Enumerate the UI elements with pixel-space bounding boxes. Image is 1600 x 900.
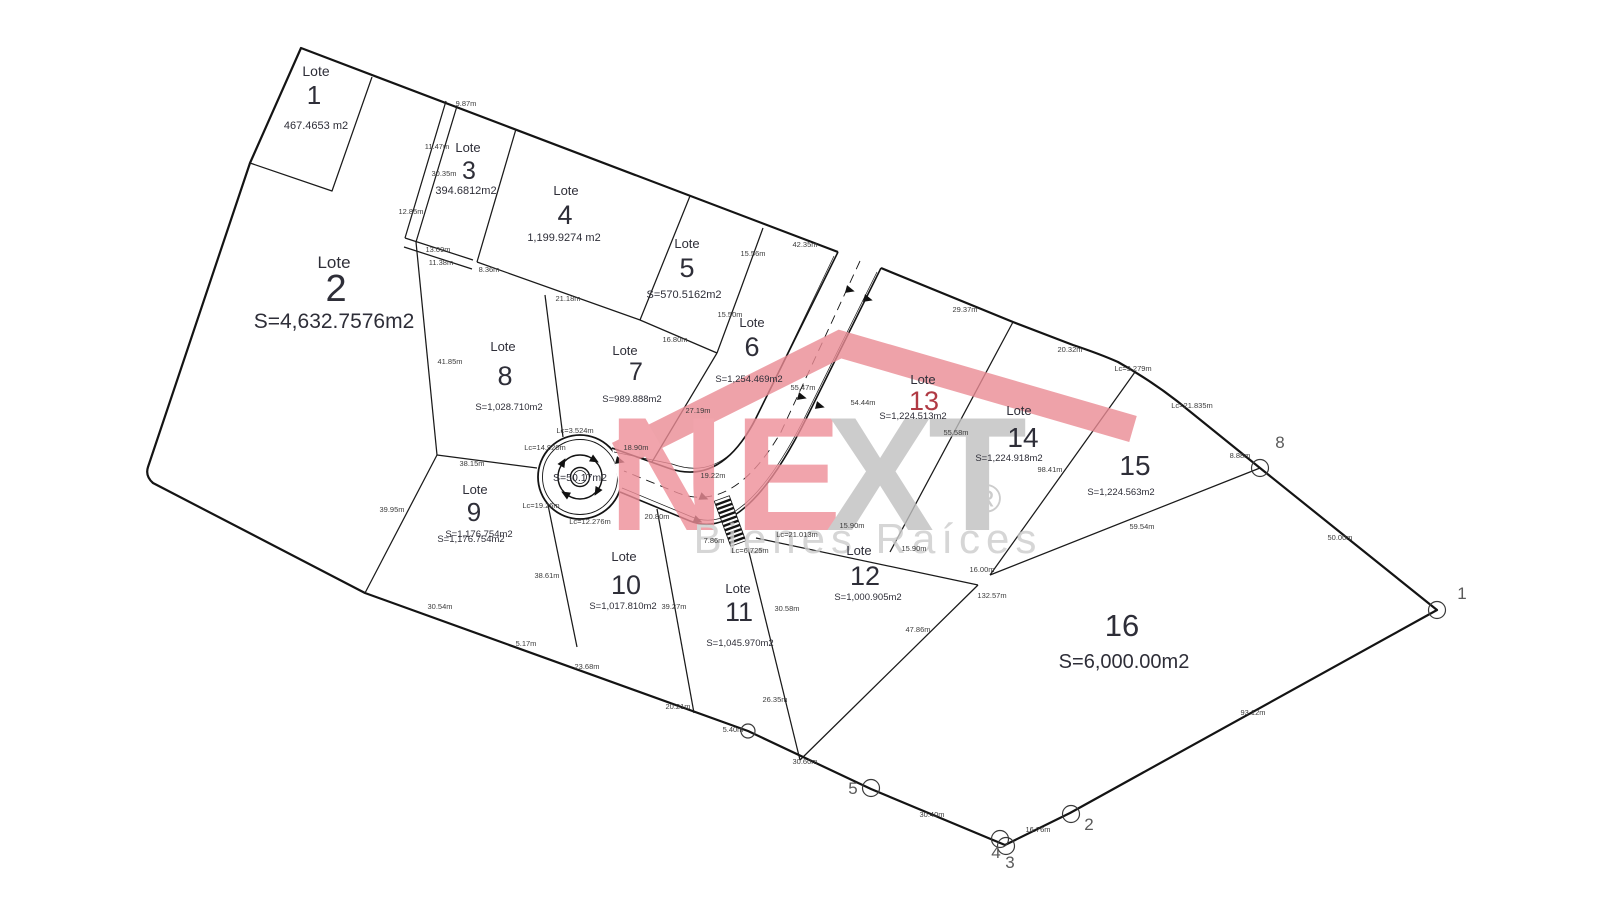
lot-8-number: 8 [497,361,512,391]
dim-label: 8.88m [1230,451,1251,460]
lot-1-area: 467.4653 m2 [284,120,348,132]
watermark-logo: NEXT ® Bienes Raíces [608,344,1133,565]
lot7-8-line [545,295,563,437]
roundabout-arrow-icon [557,456,568,468]
dim-label: 20.80m [644,512,669,521]
lot-9-area-duplicate: S=1,176.754m2 [437,534,504,545]
survey-point-label-4: 4 [991,843,1000,862]
lot-16-area: S=6,000.00m2 [1059,651,1190,673]
lot-12-number: 12 [850,561,880,591]
lot-7-word: Lote [612,343,637,358]
dim-label: 15.90m [839,521,864,530]
dim-label: 27.19m [685,406,710,415]
dim-label: 23.68m [574,662,599,671]
lot-5-word: Lote [674,236,699,251]
lot-15-number: 15 [1119,450,1150,481]
lot-2-area: S=4,632.7576m2 [254,310,415,333]
lot-6-area: S=1,254.469m2 [715,374,782,385]
dim-label: 8.36m [479,265,500,274]
lot-12-area: S=1,000.905m2 [834,592,901,603]
lot11-12-line [748,548,800,760]
dim-label: 132.57m [977,591,1006,600]
lot-4-area: 1,199.9274 m2 [527,232,600,244]
lot8-9-line [437,455,537,468]
lot-10-word: Lote [611,549,636,564]
dim-label: 39.95m [379,505,404,514]
dim-label: 55.58m [943,428,968,437]
dim-label: Lc=3.524m [556,426,593,435]
dim-label: 12.85m [398,207,423,216]
dim-label: 21.18m [555,294,580,303]
lot-14-number: 14 [1007,422,1038,453]
dim-label: Lc=21.013m [776,530,818,539]
dim-label: 29.37m [952,305,977,314]
dim-label: 15.56m [740,249,765,258]
lot-9-word: Lote [462,482,487,497]
dim-label: 5.40m [723,725,744,734]
dim-label: 30.60m [792,757,817,766]
roundabout-arrow-icon [591,486,602,498]
lot-15-area: S=1,224.563m2 [1087,487,1154,498]
dim-label: 39.27m [661,602,686,611]
lot-11-word: Lote [725,581,750,596]
dim-label: 30.35m [431,169,456,178]
dim-label: 11.47m [425,142,449,151]
lot-3-area: 394.6812m2 [435,185,496,197]
dim-label: 11.38m [429,258,453,267]
lot-1-word: Lote [302,63,329,79]
lot-7-area: S=989.888m2 [602,394,661,405]
lot-labels-layer: Lote1467.4653 m2Lote2S=4,632.7576m2Lote3… [254,63,1190,673]
lot-16-number: 16 [1105,608,1139,643]
lot-11-number: 11 [725,597,753,627]
lot2-8-line [416,242,437,455]
dim-label: 50.00m [1327,533,1352,542]
dim-label: 13.09m [425,245,450,254]
dim-label: 15.90m [901,544,926,553]
lot-14-word: Lote [1006,403,1031,418]
dim-label: 9.87m [456,99,477,108]
dim-label: Lc=9.279m [1114,364,1151,373]
dim-label: 16.00m [969,565,994,574]
survey-plat-canvas: NEXT ® Bienes Raíces Lote1467.4653 m2Lot… [0,0,1600,900]
dim-label: 30.40m [919,810,944,819]
roundabout-area-label: S=50.17m2 [553,472,607,484]
lot-4-number: 4 [557,200,572,230]
dim-label: 54.44m [850,398,875,407]
lot-5-area: S=570.5162m2 [647,289,722,301]
dim-label: 98.41m [1037,465,1062,474]
lot-13-word: Lote [910,372,935,387]
lot9-west-line [365,455,437,593]
dim-label: 16.76m [1025,825,1050,834]
lot-8-word: Lote [490,339,515,354]
dim-label: 5.17m [516,639,537,648]
lot-10-number: 10 [611,570,641,600]
lot-13-area: S=1,224.513m2 [879,411,946,422]
dim-label: Lc=14.920m [524,443,566,452]
lot-5-number: 5 [679,253,694,283]
lot-12-word: Lote [846,543,871,558]
dim-label: Lc=6.725m [731,546,768,555]
lot-6-word: Lote [739,315,764,330]
lot-3-number: 3 [462,157,476,185]
lot-3-word: Lote [455,140,480,155]
survey-point-label-1: 1 [1457,584,1466,603]
dim-label: 30.54m [427,602,452,611]
lot-14-area: S=1,224.918m2 [975,453,1042,464]
dim-label: 20.32m [1057,345,1082,354]
survey-point-label-5: 5 [848,779,857,798]
roundabout-arrow-icon [559,488,571,499]
dim-label: 38.61m [534,571,559,580]
dim-label: 41.85m [437,357,462,366]
dim-label: 7.86m [704,536,725,545]
dim-label: 19.22m [700,471,725,480]
plat-drawing: NEXT ® Bienes Raíces Lote1467.4653 m2Lot… [0,0,1600,900]
roundabout-arrow-icon [589,454,601,465]
dim-label: 15.50m [717,310,742,319]
dim-label: 18.90m [623,443,648,452]
dim-label: 20.21m [665,702,690,711]
dim-label: 42.35m [792,240,817,249]
dim-label: 55.47m [790,383,815,392]
dim-label: 59.54m [1129,522,1154,531]
dim-label: Lc=21.835m [1171,401,1213,410]
dim-label: 47.86m [905,625,930,634]
lot-6-number: 6 [744,332,759,362]
lot-10-area: S=1,017.810m2 [589,601,656,612]
dim-label: 30.58m [774,604,799,613]
survey-point-label-8: 8 [1275,433,1284,452]
lot-2-number: 2 [325,268,346,310]
dim-label: Lc=12.276m [569,517,611,526]
dim-label: 93.12m [1240,708,1265,717]
survey-point-circle-2 [1063,806,1080,823]
lot-9-number: 9 [467,497,481,527]
lot12-16-line [800,585,978,760]
lot-11-area: S=1,045.970m2 [706,638,773,649]
lot4-south-line [477,262,640,320]
dim-label: Lc=19.26m [522,501,559,510]
dim-label: 16.80m [662,335,687,344]
lot-4-word: Lote [553,183,578,198]
survey-point-label-3: 3 [1005,853,1014,872]
dim-label: 26.35m [762,695,787,704]
dim-label: 38.15m [459,459,484,468]
lot-8-area: S=1,028.710m2 [475,402,542,413]
lot-7-number: 7 [629,358,643,386]
lot-1-number: 1 [307,80,321,110]
survey-point-label-2: 2 [1084,815,1093,834]
